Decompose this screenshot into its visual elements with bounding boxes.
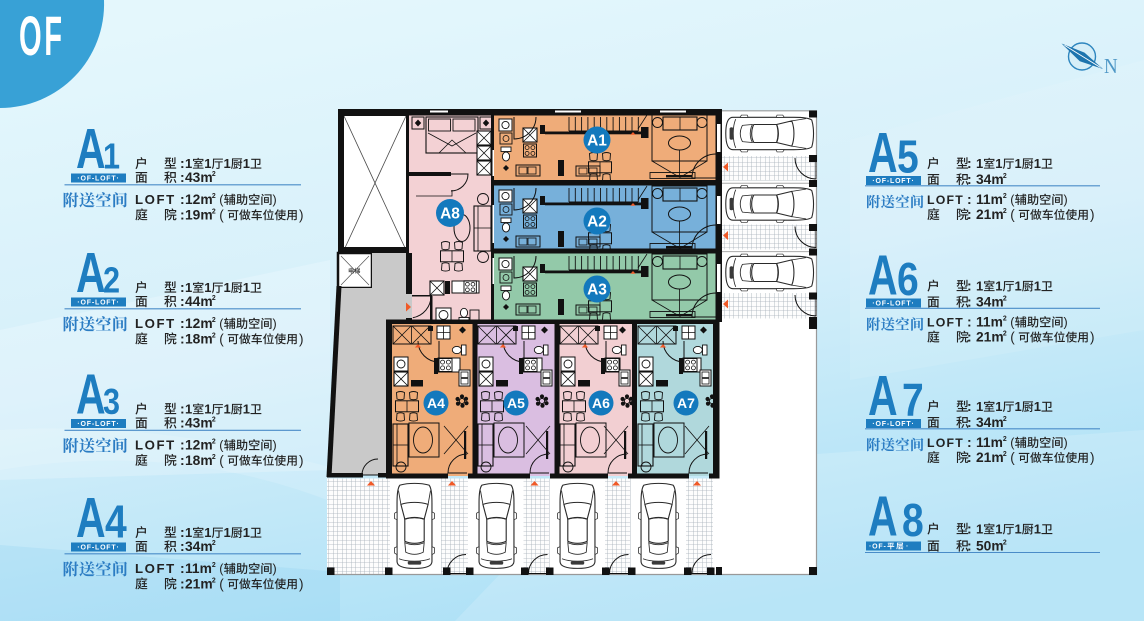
svg-text:A: A xyxy=(868,243,898,307)
svg-text:1: 1 xyxy=(1015,399,1022,414)
svg-text:LOFT: LOFT xyxy=(927,316,964,330)
svg-text:·OF-: ·OF- xyxy=(869,544,887,551)
svg-text:(: ( xyxy=(219,576,224,591)
svg-text:·OF-LOFT·: ·OF-LOFT· xyxy=(872,301,914,308)
svg-text:4: 4 xyxy=(105,497,127,549)
svg-text:1: 1 xyxy=(204,525,211,540)
svg-text:34m: 34m xyxy=(976,295,1004,310)
svg-text:LOFT: LOFT xyxy=(135,192,176,207)
svg-text:A6: A6 xyxy=(592,395,610,411)
svg-text:34m: 34m xyxy=(976,172,1004,187)
svg-text:1: 1 xyxy=(1015,522,1022,537)
svg-text:): ) xyxy=(299,453,304,468)
svg-text:LOFT: LOFT xyxy=(135,316,176,331)
svg-text:2: 2 xyxy=(1003,316,1007,323)
svg-text:21m: 21m xyxy=(976,450,1004,465)
svg-text:A7: A7 xyxy=(677,395,695,411)
svg-text:A8: A8 xyxy=(440,206,460,223)
svg-text::: : xyxy=(180,452,185,468)
svg-text:2: 2 xyxy=(212,417,216,424)
svg-text:A2: A2 xyxy=(587,214,607,231)
svg-text:(: ( xyxy=(219,207,224,222)
svg-text:2: 2 xyxy=(212,454,216,461)
svg-text:1: 1 xyxy=(224,402,231,417)
svg-text:2: 2 xyxy=(1003,451,1007,458)
svg-text:11m: 11m xyxy=(976,435,1003,450)
svg-text:34m: 34m xyxy=(976,415,1004,430)
svg-text:·OF-LOFT·: ·OF-LOFT· xyxy=(77,545,119,552)
svg-text:34m: 34m xyxy=(185,539,213,554)
svg-text:(: ( xyxy=(1010,330,1015,345)
svg-text:21m: 21m xyxy=(976,330,1004,345)
svg-text:A1: A1 xyxy=(587,133,607,150)
svg-text::: : xyxy=(967,278,972,294)
svg-text:1: 1 xyxy=(185,156,192,171)
svg-text:): ) xyxy=(273,439,277,453)
svg-text:1: 1 xyxy=(224,525,231,540)
svg-text:): ) xyxy=(273,317,277,331)
svg-text:44m: 44m xyxy=(185,294,213,309)
svg-text:OF: OF xyxy=(19,6,65,67)
svg-text::: : xyxy=(967,314,972,330)
svg-text:2: 2 xyxy=(1003,193,1007,200)
svg-text:): ) xyxy=(1064,436,1068,450)
svg-text:1: 1 xyxy=(243,525,250,540)
svg-text:A: A xyxy=(868,484,898,548)
svg-text::: : xyxy=(180,293,185,309)
svg-text::: : xyxy=(967,206,972,222)
svg-text:1: 1 xyxy=(243,280,250,295)
svg-text:2: 2 xyxy=(1003,173,1007,180)
svg-text:2: 2 xyxy=(212,171,216,178)
svg-text:1: 1 xyxy=(1015,156,1022,171)
svg-text:(: ( xyxy=(219,453,224,468)
svg-text::: : xyxy=(967,398,972,414)
svg-text:2: 2 xyxy=(1003,296,1007,303)
svg-text::: : xyxy=(967,434,972,450)
svg-text::: : xyxy=(180,169,185,185)
svg-text:1: 1 xyxy=(204,402,211,417)
svg-text:1: 1 xyxy=(224,280,231,295)
svg-text:A: A xyxy=(76,240,106,304)
svg-text:3: 3 xyxy=(103,383,120,423)
svg-text:): ) xyxy=(1090,330,1095,345)
svg-text:A: A xyxy=(868,120,898,184)
svg-text::: : xyxy=(180,415,185,431)
svg-text:A: A xyxy=(76,362,106,426)
svg-text:1: 1 xyxy=(995,399,1002,414)
svg-text:50m: 50m xyxy=(976,539,1004,554)
svg-text:18m: 18m xyxy=(185,453,213,468)
svg-text:): ) xyxy=(273,562,277,576)
svg-text:2: 2 xyxy=(212,333,216,340)
svg-text:6: 6 xyxy=(897,254,919,306)
svg-text::: : xyxy=(967,155,972,171)
svg-text:11m: 11m xyxy=(976,192,1003,207)
svg-text:1: 1 xyxy=(976,522,983,537)
svg-text:·: · xyxy=(906,544,908,551)
svg-text::: : xyxy=(967,329,972,345)
svg-text:2: 2 xyxy=(212,540,216,547)
svg-text:2: 2 xyxy=(1003,331,1007,338)
svg-text::: : xyxy=(967,521,972,537)
svg-text:(: ( xyxy=(1010,207,1015,222)
svg-text:2: 2 xyxy=(1003,208,1007,215)
svg-text:LOFT: LOFT xyxy=(135,561,176,576)
svg-text:11m: 11m xyxy=(185,561,212,576)
svg-text:1: 1 xyxy=(103,137,120,177)
svg-text:): ) xyxy=(1090,207,1095,222)
svg-text::: : xyxy=(967,538,972,554)
svg-text::: : xyxy=(180,330,185,346)
svg-text:1: 1 xyxy=(976,399,983,414)
svg-text:19m: 19m xyxy=(185,207,213,222)
svg-text:8: 8 xyxy=(902,495,924,547)
svg-text:43m: 43m xyxy=(185,170,213,185)
svg-text:1: 1 xyxy=(976,279,983,294)
svg-text:(: ( xyxy=(219,331,224,346)
svg-text:): ) xyxy=(1064,316,1068,330)
svg-text::: : xyxy=(180,191,185,207)
svg-text:1: 1 xyxy=(1034,279,1041,294)
svg-text:2: 2 xyxy=(212,193,216,200)
svg-text::: : xyxy=(180,575,185,591)
svg-text:): ) xyxy=(299,331,304,346)
svg-text:): ) xyxy=(1064,193,1068,207)
svg-text:2: 2 xyxy=(212,209,216,216)
svg-text:1: 1 xyxy=(204,156,211,171)
svg-text::: : xyxy=(967,171,972,187)
svg-text:A: A xyxy=(76,485,106,549)
svg-text:2: 2 xyxy=(103,261,120,301)
svg-text:2: 2 xyxy=(1003,416,1007,423)
svg-text:1: 1 xyxy=(1034,522,1041,537)
svg-text::: : xyxy=(180,206,185,222)
svg-text:7: 7 xyxy=(902,375,924,427)
svg-text::: : xyxy=(967,294,972,310)
svg-text:): ) xyxy=(299,576,304,591)
svg-text:1: 1 xyxy=(185,402,192,417)
svg-text:·OF-LOFT·: ·OF-LOFT· xyxy=(872,421,914,428)
svg-text:2: 2 xyxy=(212,439,216,446)
svg-text:1: 1 xyxy=(1015,279,1022,294)
svg-text:1: 1 xyxy=(976,156,983,171)
svg-text::: : xyxy=(967,191,972,207)
svg-text::: : xyxy=(180,560,185,576)
svg-text:12m: 12m xyxy=(185,192,213,207)
svg-text:1: 1 xyxy=(243,402,250,417)
svg-text:11m: 11m xyxy=(976,315,1003,330)
svg-text:A4: A4 xyxy=(427,395,445,411)
svg-text::: : xyxy=(967,414,972,430)
svg-text:2: 2 xyxy=(212,317,216,324)
svg-text:1: 1 xyxy=(1034,156,1041,171)
svg-text:2: 2 xyxy=(212,562,216,569)
svg-text:1: 1 xyxy=(995,156,1002,171)
svg-text:A: A xyxy=(76,116,106,180)
svg-text:·OF-LOFT·: ·OF-LOFT· xyxy=(77,176,119,183)
svg-text:5: 5 xyxy=(897,132,919,184)
svg-text:1: 1 xyxy=(995,279,1002,294)
svg-text::: : xyxy=(180,538,185,554)
svg-text:LOFT: LOFT xyxy=(927,436,964,450)
svg-text:12m: 12m xyxy=(185,316,213,331)
svg-text::: : xyxy=(180,437,185,453)
svg-text:21m: 21m xyxy=(185,576,213,591)
svg-text:2: 2 xyxy=(212,295,216,302)
svg-text:LOFT: LOFT xyxy=(927,193,964,207)
svg-text:1: 1 xyxy=(1034,399,1041,414)
svg-text:A5: A5 xyxy=(507,395,525,411)
svg-text:43m: 43m xyxy=(185,416,213,431)
svg-text:12m: 12m xyxy=(185,438,213,453)
svg-text:1: 1 xyxy=(185,280,192,295)
svg-text::: : xyxy=(967,449,972,465)
svg-text:18m: 18m xyxy=(185,331,213,346)
svg-text:2: 2 xyxy=(1003,540,1007,547)
svg-text:): ) xyxy=(273,193,277,207)
svg-text:N: N xyxy=(1104,55,1118,78)
svg-text:A3: A3 xyxy=(587,282,607,299)
svg-text:1: 1 xyxy=(995,522,1002,537)
svg-text:A: A xyxy=(868,363,898,427)
svg-text:·OF-LOFT·: ·OF-LOFT· xyxy=(77,421,119,428)
svg-text:1: 1 xyxy=(224,156,231,171)
svg-text:LOFT: LOFT xyxy=(135,438,176,453)
svg-text:1: 1 xyxy=(185,525,192,540)
svg-text:·OF-LOFT·: ·OF-LOFT· xyxy=(77,300,119,307)
svg-text:21m: 21m xyxy=(976,207,1004,222)
svg-text:(: ( xyxy=(1010,450,1015,465)
svg-text:): ) xyxy=(1090,450,1095,465)
svg-text:1: 1 xyxy=(243,156,250,171)
svg-text:): ) xyxy=(299,207,304,222)
svg-text:2: 2 xyxy=(212,578,216,585)
svg-text::: : xyxy=(180,315,185,331)
svg-text:1: 1 xyxy=(204,280,211,295)
svg-text:·OF-LOFT·: ·OF-LOFT· xyxy=(872,178,914,185)
svg-text:2: 2 xyxy=(1003,436,1007,443)
